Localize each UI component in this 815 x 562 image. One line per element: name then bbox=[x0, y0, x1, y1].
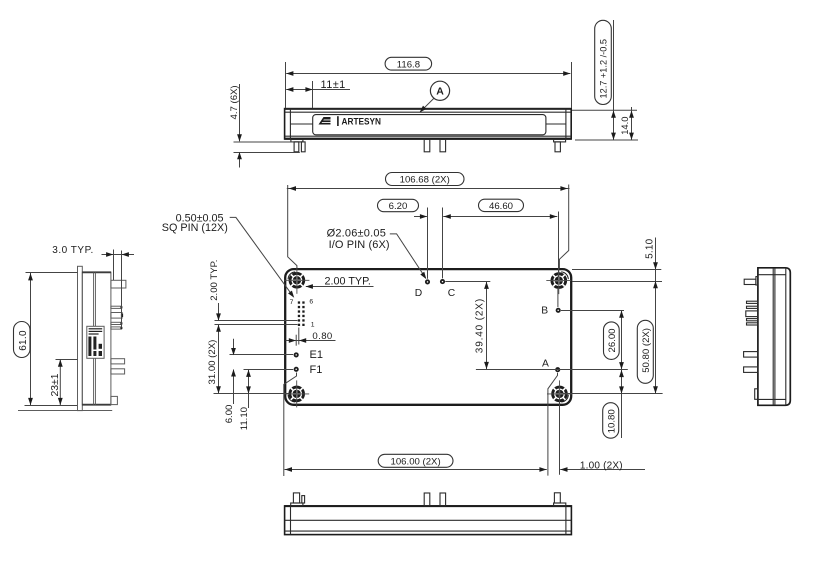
svg-text:Ø2.06±0.05: Ø2.06±0.05 bbox=[327, 228, 386, 240]
svg-text:39.40 (2X): 39.40 (2X) bbox=[475, 298, 486, 353]
svg-text:B: B bbox=[541, 306, 548, 317]
svg-text:14.0: 14.0 bbox=[619, 117, 630, 135]
svg-text:23±1: 23±1 bbox=[50, 373, 61, 396]
svg-text:E1: E1 bbox=[310, 349, 323, 361]
svg-text:11±1: 11±1 bbox=[321, 79, 346, 91]
svg-text:F1: F1 bbox=[310, 364, 323, 376]
svg-text:6.20: 6.20 bbox=[389, 201, 408, 212]
svg-text:31.00 (2X): 31.00 (2X) bbox=[207, 340, 218, 385]
svg-text:61.0: 61.0 bbox=[18, 330, 29, 351]
svg-text:A: A bbox=[542, 359, 549, 370]
svg-text:11.10: 11.10 bbox=[239, 407, 250, 430]
svg-text:3.0 TYP.: 3.0 TYP. bbox=[52, 245, 93, 256]
svg-text:1.00 (2X): 1.00 (2X) bbox=[580, 460, 623, 471]
svg-text:A: A bbox=[436, 86, 444, 98]
svg-text:4.7 (6X): 4.7 (6X) bbox=[229, 85, 240, 119]
svg-text:26.00: 26.00 bbox=[607, 328, 618, 352]
svg-text:SQ PIN (12X): SQ PIN (12X) bbox=[162, 222, 228, 234]
svg-text:0.80: 0.80 bbox=[312, 331, 332, 342]
svg-text:I/O PIN (6X): I/O PIN (6X) bbox=[329, 239, 390, 251]
svg-text:50.80 (2X): 50.80 (2X) bbox=[641, 328, 652, 373]
svg-text:1: 1 bbox=[311, 321, 315, 328]
svg-text:12.7 +1.2 /-0.5: 12.7 +1.2 /-0.5 bbox=[598, 39, 608, 99]
svg-text:2.00 TYP.: 2.00 TYP. bbox=[325, 275, 371, 287]
svg-text:6: 6 bbox=[309, 299, 313, 306]
svg-text:D: D bbox=[415, 288, 422, 299]
svg-text:2.00 TYP.: 2.00 TYP. bbox=[209, 260, 220, 301]
svg-text:5.10: 5.10 bbox=[645, 238, 656, 259]
svg-text:106.68 (2X): 106.68 (2X) bbox=[400, 175, 450, 186]
svg-text:10.80: 10.80 bbox=[606, 409, 617, 433]
svg-text:106.00 (2X): 106.00 (2X) bbox=[391, 456, 441, 467]
svg-text:ARTESYN: ARTESYN bbox=[342, 116, 382, 127]
svg-text:C: C bbox=[448, 288, 456, 299]
svg-text:7: 7 bbox=[290, 299, 294, 306]
svg-text:116.8: 116.8 bbox=[397, 59, 420, 70]
svg-text:46.60: 46.60 bbox=[489, 201, 513, 212]
svg-text:6.00: 6.00 bbox=[224, 405, 235, 424]
